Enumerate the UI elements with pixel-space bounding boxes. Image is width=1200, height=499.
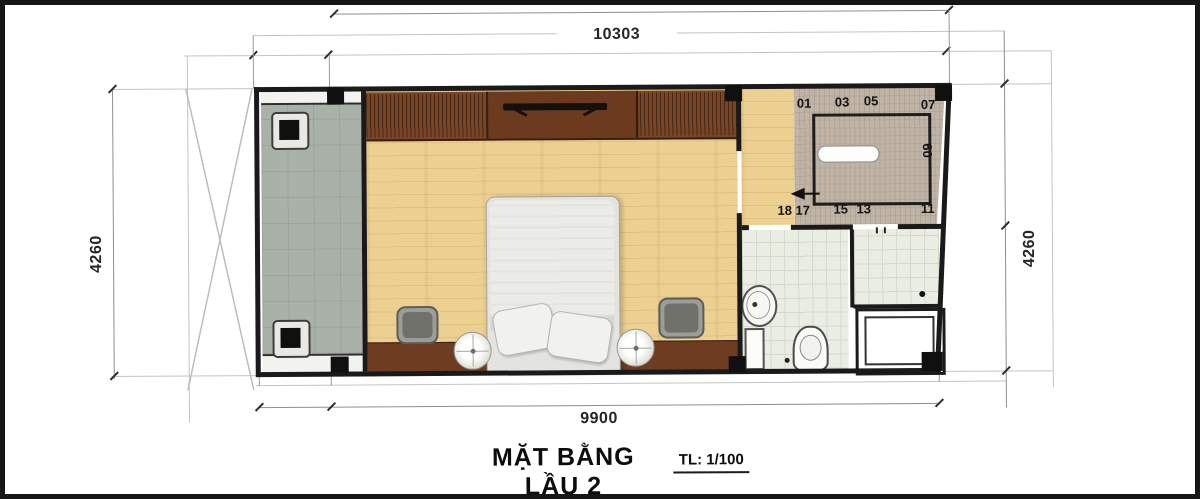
vent-tick: [876, 227, 878, 233]
wall-wc-shaft: [853, 304, 940, 309]
stool-right: [658, 297, 704, 338]
floor-drain: [785, 358, 790, 363]
wardrobe-clothes-left: [366, 94, 486, 138]
vent-tick: [884, 227, 886, 233]
step-number-03: 03: [830, 94, 854, 109]
column: [331, 357, 349, 373]
pillow: [545, 310, 613, 365]
column: [935, 85, 952, 101]
plan-title: MẶT BẰNG LẦU 2: [463, 443, 663, 499]
nightstand-lamp-left: [454, 332, 492, 370]
column: [922, 352, 943, 371]
wall-hall-bath-b: [791, 224, 853, 229]
column: [280, 328, 300, 348]
column: [725, 85, 742, 101]
stair-arrow-tail: [804, 193, 820, 195]
column: [327, 88, 344, 105]
wardrobe-clothes-right: [636, 92, 737, 136]
floor-plan-sheet: 10303 4260 4260 9900: [0, 0, 1200, 499]
wall-bedroom-hall-lower: [737, 213, 743, 369]
wall-bath-wc: [850, 229, 854, 307]
sink-basin: [746, 291, 770, 319]
plan-scale: TL: 1/100: [673, 451, 749, 473]
stair-direction-arrow: [791, 188, 805, 200]
floor-plan-drawing: 10303 4260 4260 9900: [0, 0, 1200, 499]
nightstand-lamp-right: [616, 329, 654, 367]
sink-faucet: [752, 302, 757, 307]
balcony-parapet-top: [261, 90, 361, 105]
step-number-09: 09: [920, 138, 935, 162]
step-number-13: 13: [852, 201, 876, 216]
wall-hall-bath-a: [742, 225, 749, 230]
step-number-05: 05: [859, 93, 883, 108]
void-x: [186, 89, 254, 390]
wc-floor: [854, 229, 939, 307]
bed-blanket: [490, 200, 615, 317]
step-number-01: 01: [792, 96, 816, 111]
stair-handrail: [817, 145, 879, 162]
door-stop-dot: [919, 291, 925, 297]
toilet-bowl: [800, 335, 822, 361]
stool-left: [396, 306, 438, 344]
step-number-18: 18: [773, 203, 797, 218]
column: [279, 120, 299, 140]
column: [729, 356, 746, 372]
wall-hall-bath-c: [898, 224, 945, 229]
step-number-11: 11: [916, 201, 940, 216]
step-number-15: 15: [829, 201, 853, 216]
wardrobe-middle: [486, 91, 638, 139]
shower-tray: [744, 328, 764, 370]
